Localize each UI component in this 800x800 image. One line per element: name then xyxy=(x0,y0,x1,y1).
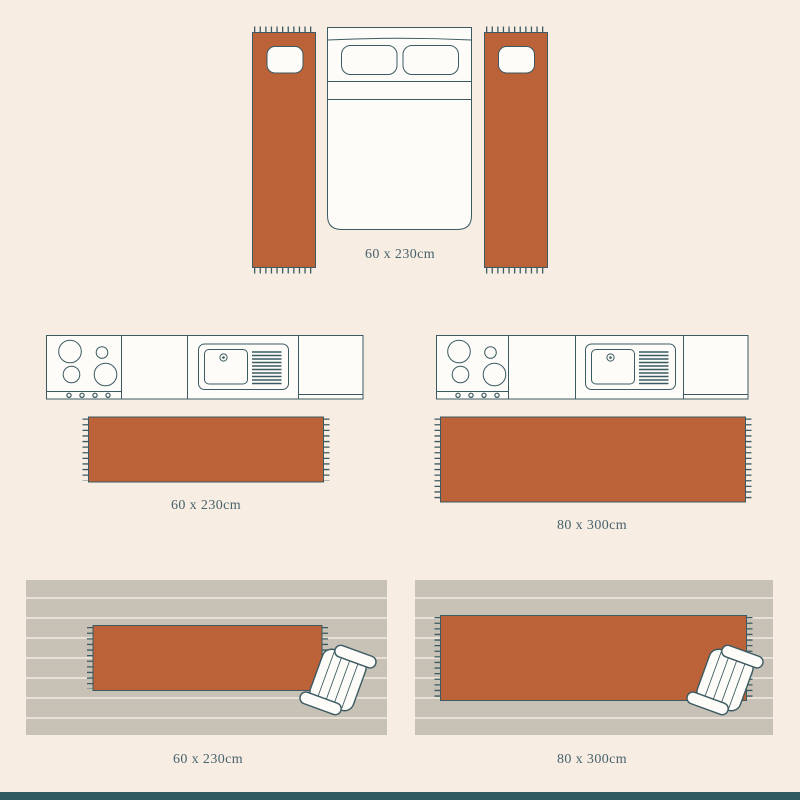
kitchen-counter-icon xyxy=(47,336,364,400)
runner-rug-right xyxy=(485,30,548,271)
bed-icon xyxy=(328,28,472,230)
cooktop-knob xyxy=(67,393,71,397)
pillow-right xyxy=(403,46,459,75)
nightstand-icon xyxy=(267,47,303,74)
cooktop-knob xyxy=(456,393,460,397)
rug-body xyxy=(441,417,746,502)
hallway-scene-small xyxy=(26,580,387,735)
size-label-hallway-large: 80 x 300cm xyxy=(482,752,702,768)
kitchen-scene-small xyxy=(47,336,364,483)
bedroom-scene xyxy=(253,28,548,271)
kitchen-scene-large xyxy=(437,336,749,503)
size-label-kitchen-small: 60 x 230cm xyxy=(96,498,316,514)
illustrations-canvas xyxy=(0,0,800,800)
size-label-bedroom: 60 x 230cm xyxy=(290,247,510,263)
size-label-kitchen-large: 80 x 300cm xyxy=(482,518,702,534)
kitchen-counter-icon xyxy=(437,336,749,400)
runner-rug-hall-small xyxy=(90,626,325,691)
runner-rug-left xyxy=(253,30,316,271)
cooktop-knob xyxy=(495,393,499,397)
nightstand-icon xyxy=(499,47,535,74)
rug-size-guide: 60 x 230cm 60 x 230cm 80 x 300cm 60 x 23… xyxy=(0,0,800,800)
cooktop-knob xyxy=(482,393,486,397)
cooktop-knob xyxy=(93,393,97,397)
cooktop-knob xyxy=(80,393,84,397)
hallway-scene-large xyxy=(415,580,773,735)
cooktop-knob xyxy=(469,393,473,397)
runner-rug-kitchen-small xyxy=(86,417,327,482)
pillow-left xyxy=(342,46,398,75)
rug-body xyxy=(93,626,322,691)
footer-accent-bar xyxy=(0,792,800,800)
size-label-hallway-small: 60 x 230cm xyxy=(98,752,318,768)
rug-body xyxy=(89,417,324,482)
cooktop-knob xyxy=(106,393,110,397)
runner-rug-kitchen-large xyxy=(438,417,749,502)
